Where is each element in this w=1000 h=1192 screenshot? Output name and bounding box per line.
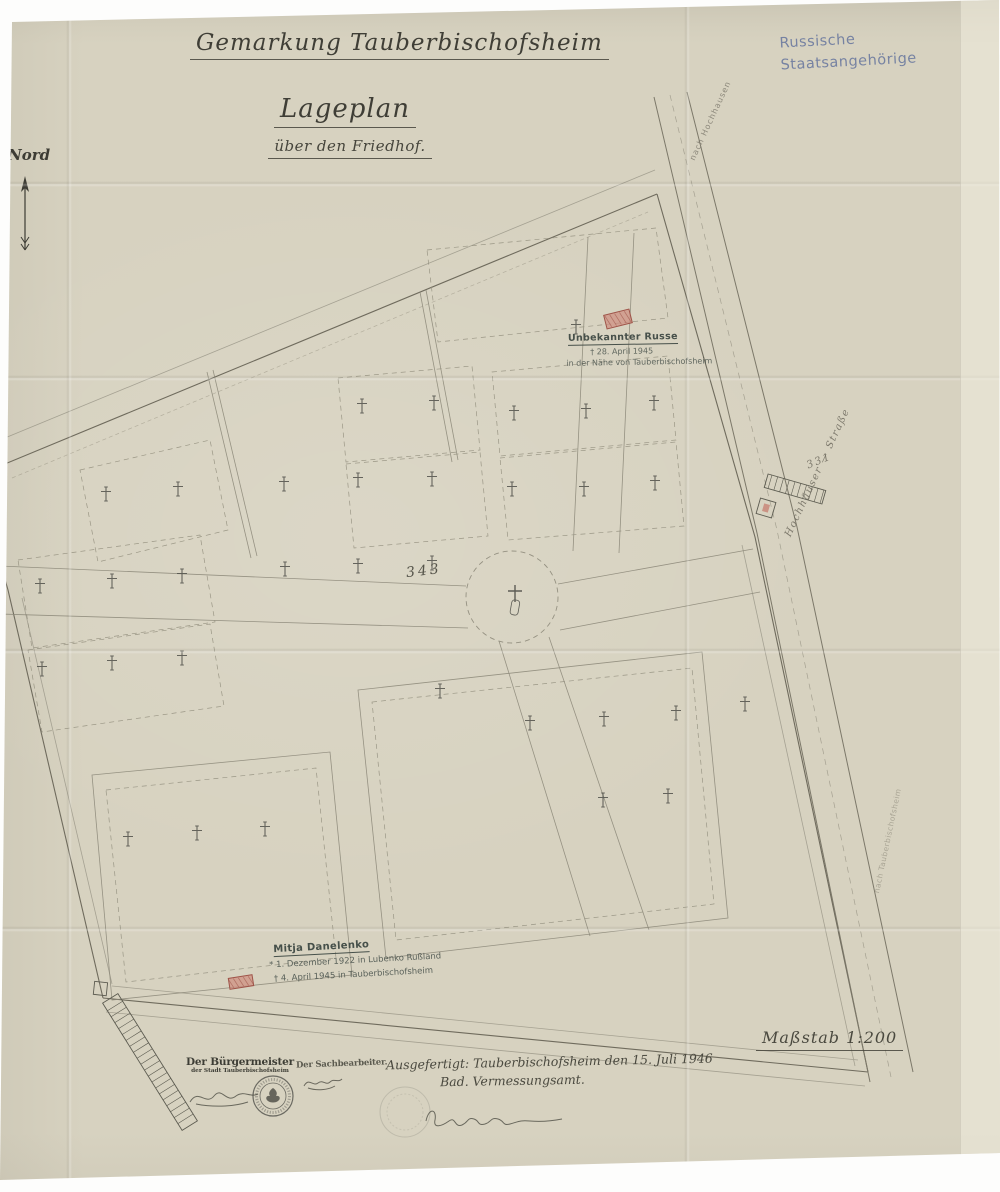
field-solid-outlines — [92, 652, 728, 1000]
russian-nationals-note: Russische Staatsangehörige — [779, 26, 917, 77]
scale-label: Maßstab 1:200 — [756, 1028, 903, 1047]
central-monument-cross — [508, 585, 522, 616]
grave-name: Unbekannter Russe — [568, 331, 678, 346]
north-arrow-icon — [21, 176, 29, 250]
plan-title: Lageplan — [240, 94, 450, 124]
region-title: Gemarkung Tauberbischofsheim — [190, 30, 570, 56]
north-label: Nord — [8, 146, 50, 164]
red-grave-markers — [228, 309, 632, 989]
plan-subtitle: über den Friedhof. — [250, 137, 450, 155]
clerk-signature — [304, 1079, 342, 1090]
grave-death-date: † 28. April 1945 — [590, 346, 653, 356]
surveyor-signature — [426, 1111, 562, 1126]
secondary-wall-lines — [0, 170, 865, 1086]
boundary-lines — [0, 194, 868, 1072]
faint-office-stamp — [380, 1087, 430, 1137]
fold-crease — [960, 0, 1000, 1192]
scanned-plan: Gemarkung Tauberbischofsheim Lageplan üb… — [0, 0, 1000, 1192]
city-seal-stamp — [253, 1076, 293, 1116]
cemetery-plan-drawing — [0, 0, 1000, 1192]
survey-office-line: Bad. Vermessungsamt. — [440, 1072, 585, 1090]
road-lines — [654, 92, 913, 1082]
paper-sheet: Gemarkung Tauberbischofsheim Lageplan üb… — [0, 0, 1000, 1192]
mayor-stamp: Der Bürgermeister der Stadt Tauberbischo… — [182, 1056, 298, 1074]
mayor-signature — [190, 1093, 258, 1106]
